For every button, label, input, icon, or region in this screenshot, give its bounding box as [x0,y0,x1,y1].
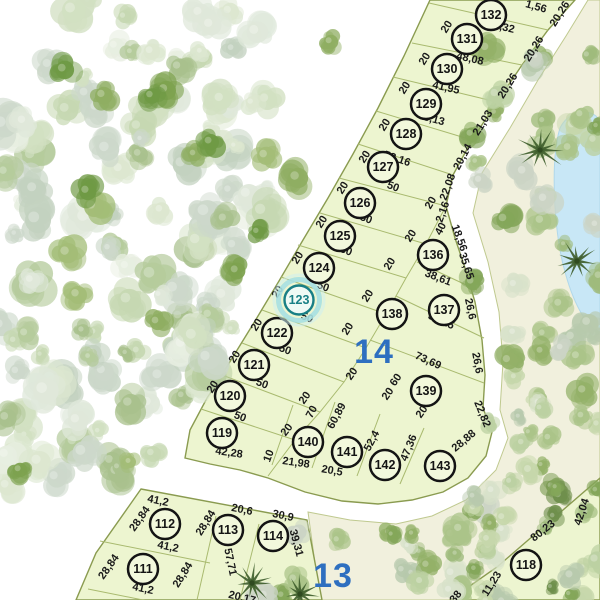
lot-number: 113 [218,523,238,537]
lot-marker[interactable]: 111 [128,554,158,584]
lot-marker[interactable]: 138 [377,299,407,329]
lot-number: 137 [434,303,455,317]
lot-marker[interactable]: 130 [432,54,462,84]
lot-number: 141 [337,445,358,459]
lot-number: 143 [430,459,451,473]
tree-icon [553,134,579,161]
lot-number: 140 [298,435,319,449]
block-number-label: 13 [313,557,353,595]
lot-number: 111 [133,562,153,576]
lot-marker[interactable]: 119 [207,418,237,448]
lot-marker[interactable]: 139 [411,376,441,406]
lot-number: 139 [416,384,437,398]
lot-number: 114 [263,529,283,543]
lot-marker[interactable]: 121 [239,350,269,380]
lot-marker[interactable]: 127 [368,152,398,182]
lot-marker[interactable]: 125 [325,221,355,251]
lot-number: 124 [309,261,330,275]
lot-number: 130 [437,62,458,76]
subdivision-plan-map: 1,5651,3248,0841,9543,1352,1650505050505… [0,0,600,600]
lot-number: 122 [267,326,288,340]
lot-number: 131 [457,32,478,46]
lot-marker[interactable]: 126 [345,188,375,218]
lot-number: 126 [350,196,371,210]
lot-marker[interactable]: 143 [425,451,455,481]
lot-marker[interactable]: 118 [511,550,541,580]
lot-number: 138 [382,307,403,321]
lot-marker[interactable]: 140 [293,427,323,457]
lot-marker[interactable]: 131 [452,24,482,54]
lot-number: 129 [416,97,437,111]
lot-marker[interactable]: 132 [476,0,506,30]
lot-marker[interactable]: 142 [370,450,400,480]
lot-number: 136 [423,248,444,262]
lot-number: 120 [220,389,241,403]
lot-marker[interactable]: 120 [215,381,245,411]
lot-marker[interactable]: 112 [150,509,180,539]
lot-marker[interactable]: 124 [304,253,334,283]
block-number-label: 14 [354,333,394,371]
lot-number: 132 [481,8,502,22]
lot-number: 119 [212,426,232,440]
lot-marker[interactable]: 114 [258,521,288,551]
lot-number: 128 [396,127,417,141]
lot-marker[interactable]: 137 [429,295,459,325]
lot-marker[interactable]: 136 [418,240,448,270]
lot-marker[interactable]: 128 [391,119,421,149]
lot-number: 142 [375,458,396,472]
plan-canvas: 1,5651,3248,0841,9543,1352,1650505050505… [0,0,600,600]
lot-number: 118 [516,558,536,572]
lot-marker[interactable]: 113 [213,515,243,545]
lot-number: 127 [373,160,394,174]
lot-number: 112 [155,517,175,531]
lot-marker[interactable]: 129 [411,89,441,119]
lot-marker[interactable]: 141 [332,437,362,467]
lot-number: 123 [289,293,310,307]
lot-number: 121 [244,358,265,372]
lot-number: 125 [330,229,351,243]
